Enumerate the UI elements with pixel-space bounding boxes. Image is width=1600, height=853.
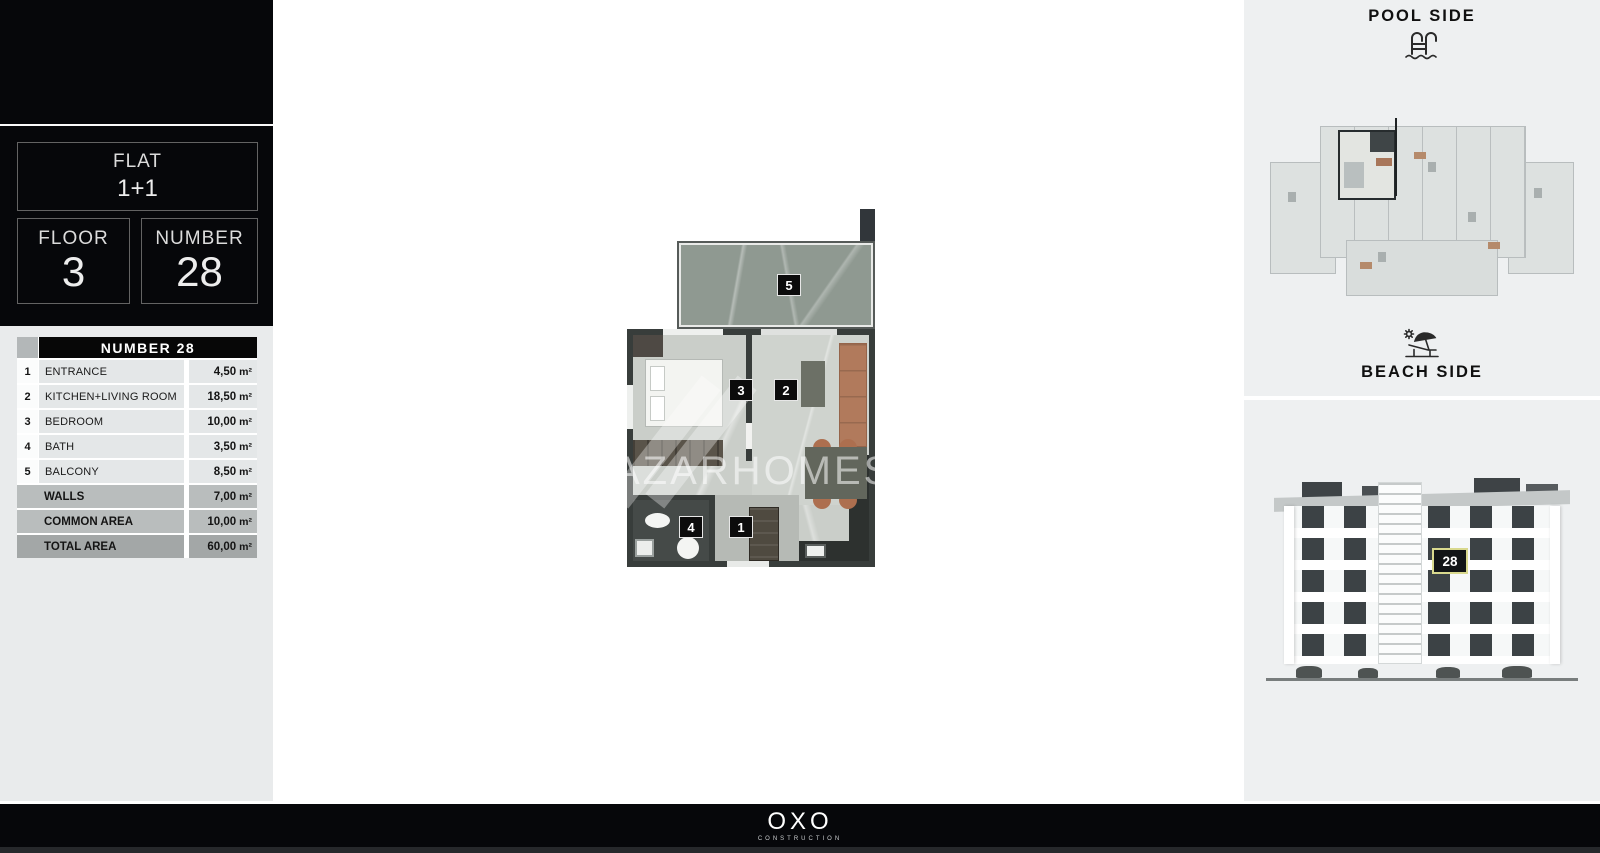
value-unit: m²: [239, 441, 252, 453]
value-number: 60,00: [207, 541, 236, 553]
building-core-shaft: [1378, 482, 1422, 664]
overview-accent: [1488, 242, 1500, 249]
unit-floorplan: 5 3 2 4 1 AZARHOMES: [627, 209, 875, 567]
value-unit: m²: [239, 541, 252, 553]
overview-unit-bed: [1344, 162, 1364, 188]
entrance-wardrobe: [749, 507, 779, 561]
row-value: 10,00m²: [189, 410, 257, 433]
summary-value: 60,00m²: [189, 535, 257, 558]
bedroom-living-wall-segment: [746, 449, 752, 461]
bedroom-door: [746, 423, 752, 449]
building-floorplan-overview: [1268, 122, 1576, 300]
left-sidebar: FLAT 1+1 FLOOR 3 NUMBER 28 NUMBER 28 1 E…: [0, 0, 273, 801]
shower-tray: [635, 539, 654, 557]
sofa: [839, 343, 867, 447]
table-row-bedroom: 3 BEDROOM 10,00m²: [17, 410, 257, 433]
row-label: BEDROOM: [39, 410, 184, 433]
bedroom-closet: [633, 440, 723, 466]
room-label-balcony: 5: [777, 274, 801, 296]
value-unit: m²: [239, 416, 252, 428]
overview-accent: [1414, 152, 1426, 159]
number-value: 28: [176, 250, 223, 294]
overview-highlighted-unit: [1338, 130, 1396, 200]
overview-detail: [1534, 188, 1542, 198]
overview-accent: [1360, 262, 1372, 269]
building-side-fin: [1284, 506, 1294, 664]
balcony-sliding-door: [761, 329, 837, 335]
value-unit: m²: [239, 491, 252, 503]
flat-info-box: FLAT 1+1: [17, 142, 258, 211]
row-number: 4: [17, 435, 38, 458]
pillow: [650, 396, 665, 421]
area-table: NUMBER 28 1 ENTRANCE 4,50m² 2 KITCHEN+LI…: [17, 337, 257, 558]
room-label-entrance: 1: [729, 516, 753, 538]
pillow: [650, 366, 665, 391]
beach-side-title: BEACH SIDE: [1244, 363, 1600, 382]
summary-label: COMMON AREA: [17, 510, 184, 533]
row-number: 5: [17, 460, 38, 483]
table-header-spacer: [17, 337, 38, 358]
pool-ladder-icon: [1244, 28, 1600, 62]
row-value: 8,50m²: [189, 460, 257, 483]
brand-logo: OXO: [767, 810, 832, 834]
footer-bar: OXO CONSTRUCTION: [0, 804, 1600, 847]
floor-info-box: FLOOR 3: [17, 218, 130, 304]
building-card: 28: [1244, 400, 1600, 801]
bedroom-window: [663, 329, 723, 335]
room-label-living: 2: [774, 379, 798, 401]
brand-subtitle: CONSTRUCTION: [758, 836, 842, 842]
table-row-bath: 4 BATH 3,50m²: [17, 435, 257, 458]
orientation-card: POOL SIDE: [1244, 0, 1600, 396]
number-info-box: NUMBER 28: [141, 218, 258, 304]
summary-label: TOTAL AREA: [17, 535, 184, 558]
bedroom-side-window: [627, 385, 633, 429]
building-unit-badge: 28: [1432, 548, 1468, 574]
value-number: 10,00: [207, 416, 236, 428]
row-number: 3: [17, 410, 38, 433]
balcony-area: [677, 241, 875, 329]
shrub: [1296, 666, 1322, 678]
building-render: 28: [1266, 472, 1578, 692]
row-label: BATH: [39, 435, 184, 458]
row-label: BALCONY: [39, 460, 184, 483]
value-number: 10,00: [207, 516, 236, 528]
dining-table: [805, 447, 867, 499]
overview-detail: [1378, 252, 1386, 262]
table-header-row: NUMBER 28: [17, 337, 257, 358]
bathroom-sink: [677, 537, 699, 559]
toilet: [645, 513, 670, 528]
table-row-kitchen-living: 2 KITCHEN+LIVING ROOM 18,50m²: [17, 385, 257, 408]
table-header-title: NUMBER 28: [39, 337, 257, 358]
value-unit: m²: [239, 516, 252, 528]
number-label: NUMBER: [155, 228, 243, 250]
value-unit: m²: [239, 391, 252, 403]
overview-pointer-line: [1395, 118, 1397, 196]
overview-unit-kitchen: [1370, 132, 1394, 152]
room-label-bedroom: 3: [729, 379, 753, 401]
summary-value: 10,00m²: [189, 510, 257, 533]
row-number: 2: [17, 385, 38, 408]
overview-detail: [1428, 162, 1436, 172]
table-row-walls: WALLS 7,00m²: [17, 485, 257, 508]
value-number: 3,50: [214, 441, 236, 453]
bedroom-wardrobe: [633, 335, 663, 357]
ground-line: [1266, 678, 1578, 681]
flat-value: 1+1: [117, 175, 158, 203]
table-row-total-area: TOTAL AREA 60,00m²: [17, 535, 257, 558]
room-label-bath: 4: [679, 516, 703, 538]
row-label: KITCHEN+LIVING ROOM: [39, 385, 184, 408]
value-unit: m²: [239, 466, 252, 478]
building-side-fin: [1550, 506, 1560, 664]
bed: [645, 359, 723, 427]
divider-line: [0, 124, 273, 126]
shrub: [1358, 668, 1378, 678]
kitchen-sink: [805, 544, 826, 558]
entrance-door-threshold: [727, 561, 769, 567]
floor-label: FLOOR: [38, 228, 108, 250]
tv-console: [801, 361, 825, 407]
table-row-balcony: 5 BALCONY 8,50m²: [17, 460, 257, 483]
overview-unit-sofa: [1376, 158, 1392, 166]
value-number: 8,50: [214, 466, 236, 478]
row-value: 3,50m²: [189, 435, 257, 458]
shrub: [1436, 667, 1460, 678]
summary-label: WALLS: [17, 485, 184, 508]
value-number: 7,00: [214, 491, 236, 503]
floor-value: 3: [62, 250, 85, 294]
building-facade: [1292, 506, 1554, 664]
beach-icon: [1244, 328, 1600, 360]
table-row-common-area: COMMON AREA 10,00m²: [17, 510, 257, 533]
value-number: 4,50: [214, 366, 236, 378]
shrub: [1502, 666, 1532, 678]
value-number: 18,50: [207, 391, 236, 403]
row-value: 18,50m²: [189, 385, 257, 408]
row-number: 1: [17, 360, 38, 383]
sidebar-black-panel: FLAT 1+1 FLOOR 3 NUMBER 28: [0, 0, 273, 326]
summary-value: 7,00m²: [189, 485, 257, 508]
table-row-entrance: 1 ENTRANCE 4,50m²: [17, 360, 257, 383]
overview-detail: [1288, 192, 1296, 202]
pool-side-title: POOL SIDE: [1244, 7, 1600, 26]
row-value: 4,50m²: [189, 360, 257, 383]
footer-bottom-strip: [0, 847, 1600, 853]
overview-detail: [1468, 212, 1476, 222]
row-label: ENTRANCE: [39, 360, 184, 383]
flat-label: FLAT: [113, 151, 162, 173]
value-unit: m²: [239, 366, 252, 378]
